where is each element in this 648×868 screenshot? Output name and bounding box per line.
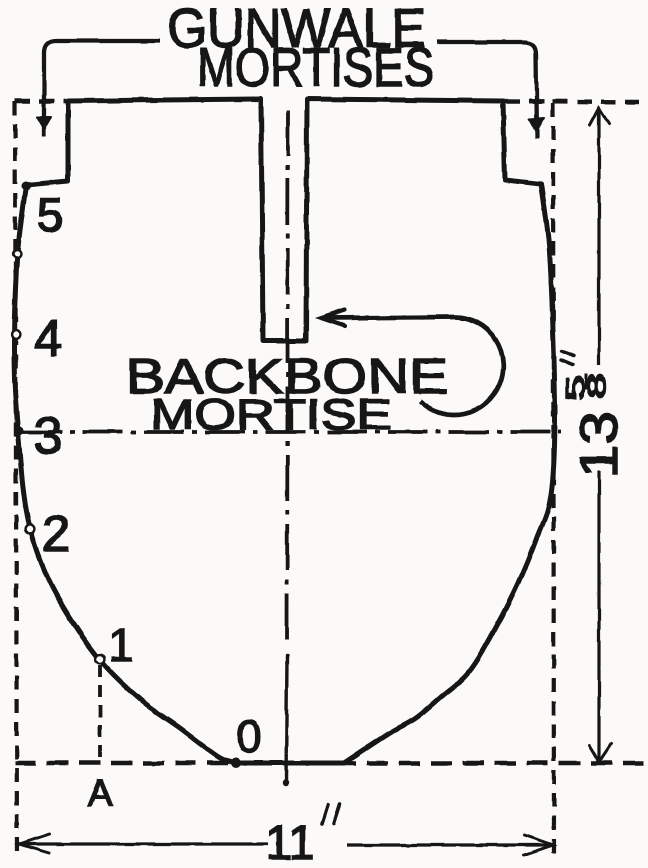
svg-text:A: A [87, 773, 113, 815]
svg-text:4: 4 [34, 310, 62, 367]
svg-text:0: 0 [236, 711, 261, 762]
svg-text:8: 8 [583, 373, 611, 399]
svg-text:MORTISES: MORTISES [197, 36, 434, 98]
svg-text:11: 11 [265, 817, 315, 868]
svg-text:1: 1 [108, 619, 134, 671]
svg-text:3: 3 [34, 407, 63, 465]
svg-text:13: 13 [570, 411, 629, 478]
svg-text:MORTISE: MORTISE [150, 391, 392, 439]
svg-text:5: 5 [37, 188, 63, 241]
svg-text:2: 2 [42, 505, 70, 562]
